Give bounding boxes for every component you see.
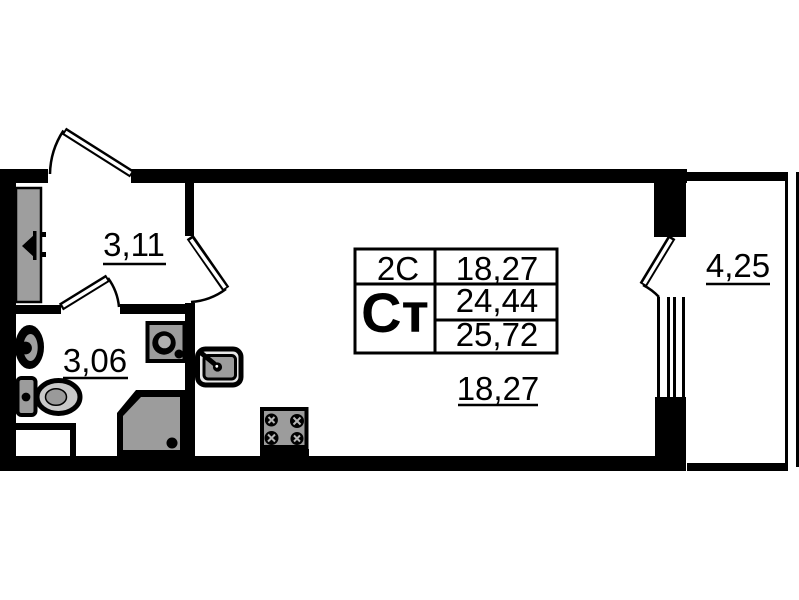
svg-text:4,25: 4,25 <box>706 247 770 284</box>
svg-text:18,27: 18,27 <box>457 370 540 407</box>
svg-text:Ст: Ст <box>361 281 429 344</box>
svg-text:3,11: 3,11 <box>103 226 165 263</box>
svg-text:25,72: 25,72 <box>456 316 539 353</box>
svg-text:24,44: 24,44 <box>456 282 539 319</box>
svg-text:3,06: 3,06 <box>63 342 127 379</box>
